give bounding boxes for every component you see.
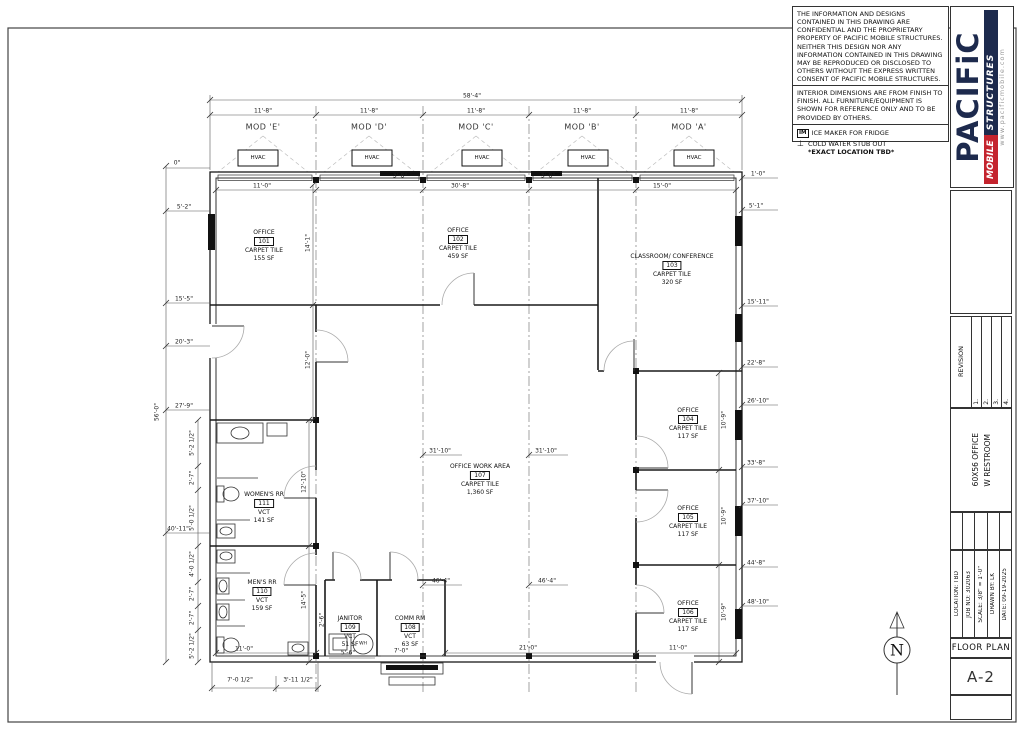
- dim-label: 15'-11": [747, 299, 769, 306]
- room-label-womens-rr-111: WOMEN'S RR 111 VCT 141 SF: [244, 491, 284, 524]
- room-name: OFFICE: [439, 227, 477, 234]
- dim-label: 10'-9": [721, 411, 728, 429]
- room-number: 108: [400, 623, 419, 632]
- dim-label: 10'-9": [721, 603, 728, 621]
- dim-label: 22'-8": [747, 360, 765, 367]
- room-number: 106: [678, 608, 697, 617]
- casework: [381, 663, 443, 685]
- job-no-field: JOB NO: 302063: [962, 551, 974, 637]
- titleblock-empty-rows: [950, 512, 1012, 550]
- room-label-mens-rr-110: MEN'S RR 110 VCT 159 SF: [247, 579, 276, 612]
- dim-label: 5'-0 1/2": [189, 505, 196, 531]
- revision-row-2: 2.: [981, 317, 991, 407]
- room-label-office-102: OFFICE 102 CARPET TILE 459 SF: [439, 227, 477, 260]
- dim-label: 4'-0 1/2": [189, 551, 196, 577]
- dim-label: 5'-1": [749, 203, 763, 210]
- hvac-label: HVAC: [580, 155, 595, 161]
- room-number: 101: [254, 237, 273, 246]
- ice-maker-label: ICE MAKER FOR FRIDGE: [812, 129, 889, 137]
- sheet-number: A-2: [950, 658, 1012, 695]
- module-lines: [316, 106, 636, 692]
- dim-label: 11'-8": [360, 108, 378, 115]
- dim-label: 11'-8": [254, 108, 272, 115]
- dim-label: 12'-0": [305, 351, 312, 369]
- date-field: DATE: 09-19-2025: [999, 551, 1011, 637]
- room-finish: CARPET TILE: [630, 271, 713, 278]
- dim-label: 30'-8": [451, 183, 469, 190]
- room-finish: VCT: [395, 633, 426, 640]
- room-label-office-101: OFFICE 101 CARPET TILE 155 SF: [245, 229, 283, 262]
- dim-label: 48'-10": [747, 599, 769, 606]
- logo-wordmark: PACIFiC: [952, 10, 984, 184]
- sheet-title: FLOOR PLAN: [950, 638, 1012, 658]
- room-number: 109: [340, 623, 359, 632]
- room-area: 117 SF: [669, 626, 707, 633]
- room-area: 320 SF: [630, 279, 713, 286]
- dim-label: 10'-9": [721, 507, 728, 525]
- room-number: 105: [678, 513, 697, 522]
- room-name: OFFICE: [245, 229, 283, 236]
- dim-label: 31'-10": [429, 448, 451, 455]
- room-finish: VCT: [338, 633, 363, 640]
- dim-label: 0": [174, 160, 181, 167]
- room-area: 155 SF: [245, 255, 283, 262]
- dim-label: 11'-8": [680, 108, 698, 115]
- hvac-label: HVAC: [364, 155, 379, 161]
- room-name: OFFICE: [669, 407, 707, 414]
- ice-maker-symbol: IM: [797, 129, 809, 138]
- drawing-sheet: THE INFORMATION AND DESIGNS CONTAINED IN…: [0, 0, 1024, 730]
- room-name: WOMEN'S RR: [244, 491, 284, 498]
- logo-website: www.pacificmobile.com: [998, 10, 1006, 184]
- project-name-box: 60X56 OFFICE W RESTROOM: [950, 408, 1012, 512]
- project-line-2: W RESTROOM: [983, 434, 992, 487]
- room-area: 141 SF: [244, 517, 284, 524]
- titleblock-footer-box: [950, 695, 1012, 720]
- dim-label: 33'-8": [747, 460, 765, 467]
- dim-label: 11'-0": [669, 645, 687, 652]
- room-area: 117 SF: [669, 433, 707, 440]
- room-finish: CARPET TILE: [669, 618, 707, 625]
- room-name: COMM RM: [395, 615, 426, 622]
- dim-label: 21'-0": [519, 645, 537, 652]
- dim-label: 46'-4": [432, 578, 450, 585]
- room-label-office-104: OFFICE 104 CARPET TILE 117 SF: [669, 407, 707, 440]
- dim-label: 7'-0": [394, 648, 408, 655]
- cold-water-note: ⊥ COLD WATER STUB OUT *EXACT LOCATION TB…: [797, 140, 944, 156]
- room-area: 459 SF: [439, 253, 477, 260]
- dim-label: 3'-8": [541, 173, 555, 180]
- revision-header: REVISION: [951, 317, 971, 407]
- room-name: MEN'S RR: [247, 579, 276, 586]
- room-label-comm-108: COMM RM 108 VCT 63 SF: [395, 615, 426, 648]
- logo-mobile: MOBILE: [984, 135, 998, 184]
- dim-label: 2'-7": [189, 587, 196, 601]
- logo-band: MOBILE STRUCTURES: [984, 10, 998, 184]
- dim-label: 20'-3": [175, 339, 193, 346]
- revision-row-1: 1.: [971, 317, 981, 407]
- dim-label: 11'-8": [573, 108, 591, 115]
- room-name: JANITOR: [338, 615, 363, 622]
- room-finish: CARPET TILE: [245, 247, 283, 254]
- dim-label: 3'-8": [393, 173, 407, 180]
- location-field: LOCATION: TBD: [951, 551, 962, 637]
- dim-label: 12'-10": [301, 471, 308, 493]
- scale-field: SCALE: 3/8" = 1'-0": [974, 551, 986, 637]
- dim-label: 2'-6": [319, 613, 326, 627]
- dim-label: 26'-10": [747, 398, 769, 405]
- dimensions-note: INTERIOR DIMENSIONS ARE FROM FINISH TO F…: [793, 86, 948, 125]
- dim-label: 58'-4": [463, 93, 481, 100]
- logo-content: PACIFiC MOBILE STRUCTURES www.pacificmob…: [952, 10, 1008, 184]
- dim-label: 44'-8": [747, 560, 765, 567]
- room-name: OFFICE: [669, 505, 707, 512]
- hvac-label: HVAC: [474, 155, 489, 161]
- revision-row-3: 3.: [991, 317, 1001, 407]
- dim-label: 31'-10": [535, 448, 557, 455]
- room-number: 104: [678, 415, 697, 424]
- dim-label: 46'-4": [538, 578, 556, 585]
- room-name: OFFICE WORK AREA: [450, 463, 510, 470]
- room-area: 1,360 SF: [450, 489, 510, 496]
- module-label-b: MOD 'B': [564, 123, 599, 132]
- revision-table: REVISION 1. 2. 3. 4.: [950, 316, 1012, 408]
- dim-label: 37'-10": [747, 498, 769, 505]
- room-name: OFFICE: [669, 600, 707, 607]
- cold-water-label: COLD WATER STUB OUT: [808, 140, 886, 148]
- room-area: 117 SF: [669, 531, 707, 538]
- dim-label: 5'-6": [341, 650, 355, 657]
- room-label-work-area-107: OFFICE WORK AREA 107 CARPET TILE 1,360 S…: [450, 463, 510, 496]
- dim-label: 11'-0": [253, 183, 271, 190]
- logo-structures: STRUCTURES: [984, 10, 998, 135]
- room-name: CLASSROOM/ CONFERENCE: [630, 253, 713, 260]
- dim-label: 27'-9": [175, 403, 193, 410]
- room-label-office-106: OFFICE 106 CARPET TILE 117 SF: [669, 600, 707, 633]
- room-finish: CARPET TILE: [439, 245, 477, 252]
- water-heater-label: WH: [359, 642, 367, 647]
- room-finish: CARPET TILE: [669, 425, 707, 432]
- dim-label: 11'-0": [235, 646, 253, 653]
- room-number: 103: [662, 261, 681, 270]
- room-finish: VCT: [244, 509, 284, 516]
- dim-label: 40'-11": [167, 526, 189, 533]
- room-finish: VCT: [247, 597, 276, 604]
- dim-label: 14'-5": [301, 591, 308, 609]
- notes-block: THE INFORMATION AND DESIGNS CONTAINED IN…: [792, 6, 949, 142]
- room-number: 102: [448, 235, 467, 244]
- room-label-office-105: OFFICE 105 CARPET TILE 117 SF: [669, 505, 707, 538]
- dim-label: 5'-2": [177, 204, 191, 211]
- drawn-by-field: DRAWN BY: LK: [987, 551, 999, 637]
- revision-row-4: 4.: [1001, 317, 1011, 407]
- module-label-e: MOD 'E': [246, 123, 281, 132]
- dim-label: 56'-0": [154, 403, 161, 421]
- room-finish: CARPET TILE: [450, 481, 510, 488]
- dim-label: 1'-0": [751, 171, 765, 178]
- hvac-label: HVAC: [250, 155, 265, 161]
- dim-label: 2'-7": [189, 471, 196, 485]
- room-number: 110: [252, 587, 271, 596]
- cold-water-stub-icon: ⊥: [797, 140, 804, 148]
- cold-water-tbd: *EXACT LOCATION TBD*: [808, 148, 894, 156]
- room-area: 159 SF: [247, 605, 276, 612]
- dim-label: 14'-1": [305, 234, 312, 252]
- dim-label: 15'-5": [175, 296, 193, 303]
- dim-label: 7'-0 1/2": [227, 677, 253, 684]
- dim-label: 3'-11 1/2": [283, 677, 313, 684]
- room-number: 107: [470, 471, 489, 480]
- room-finish: CARPET TILE: [669, 523, 707, 530]
- hvac-label: HVAC: [686, 155, 701, 161]
- dim-label: 5'-2 1/2": [189, 633, 196, 659]
- dim-label: 15'-0": [653, 183, 671, 190]
- titleblock-empty-box: [950, 190, 1012, 314]
- project-line-1: 60X56 OFFICE: [971, 433, 980, 486]
- dim-label: 2'-7": [189, 611, 196, 625]
- room-label-classroom-103: CLASSROOM/ CONFERENCE 103 CARPET TILE 32…: [630, 253, 713, 286]
- module-label-d: MOD 'D': [351, 123, 387, 132]
- room-number: 111: [254, 499, 273, 508]
- north-label: N: [890, 641, 904, 660]
- confidentiality-note: THE INFORMATION AND DESIGNS CONTAINED IN…: [793, 7, 948, 86]
- module-label-c: MOD 'C': [458, 123, 493, 132]
- job-info-box: LOCATION: TBD JOB NO: 302063 SCALE: 3/8"…: [950, 550, 1012, 638]
- dim-label: 5'-2 1/2": [189, 430, 196, 456]
- dim-label: 11'-8": [467, 108, 485, 115]
- module-label-a: MOD 'A': [671, 123, 706, 132]
- ice-maker-note: IM ICE MAKER FOR FRIDGE: [797, 129, 944, 138]
